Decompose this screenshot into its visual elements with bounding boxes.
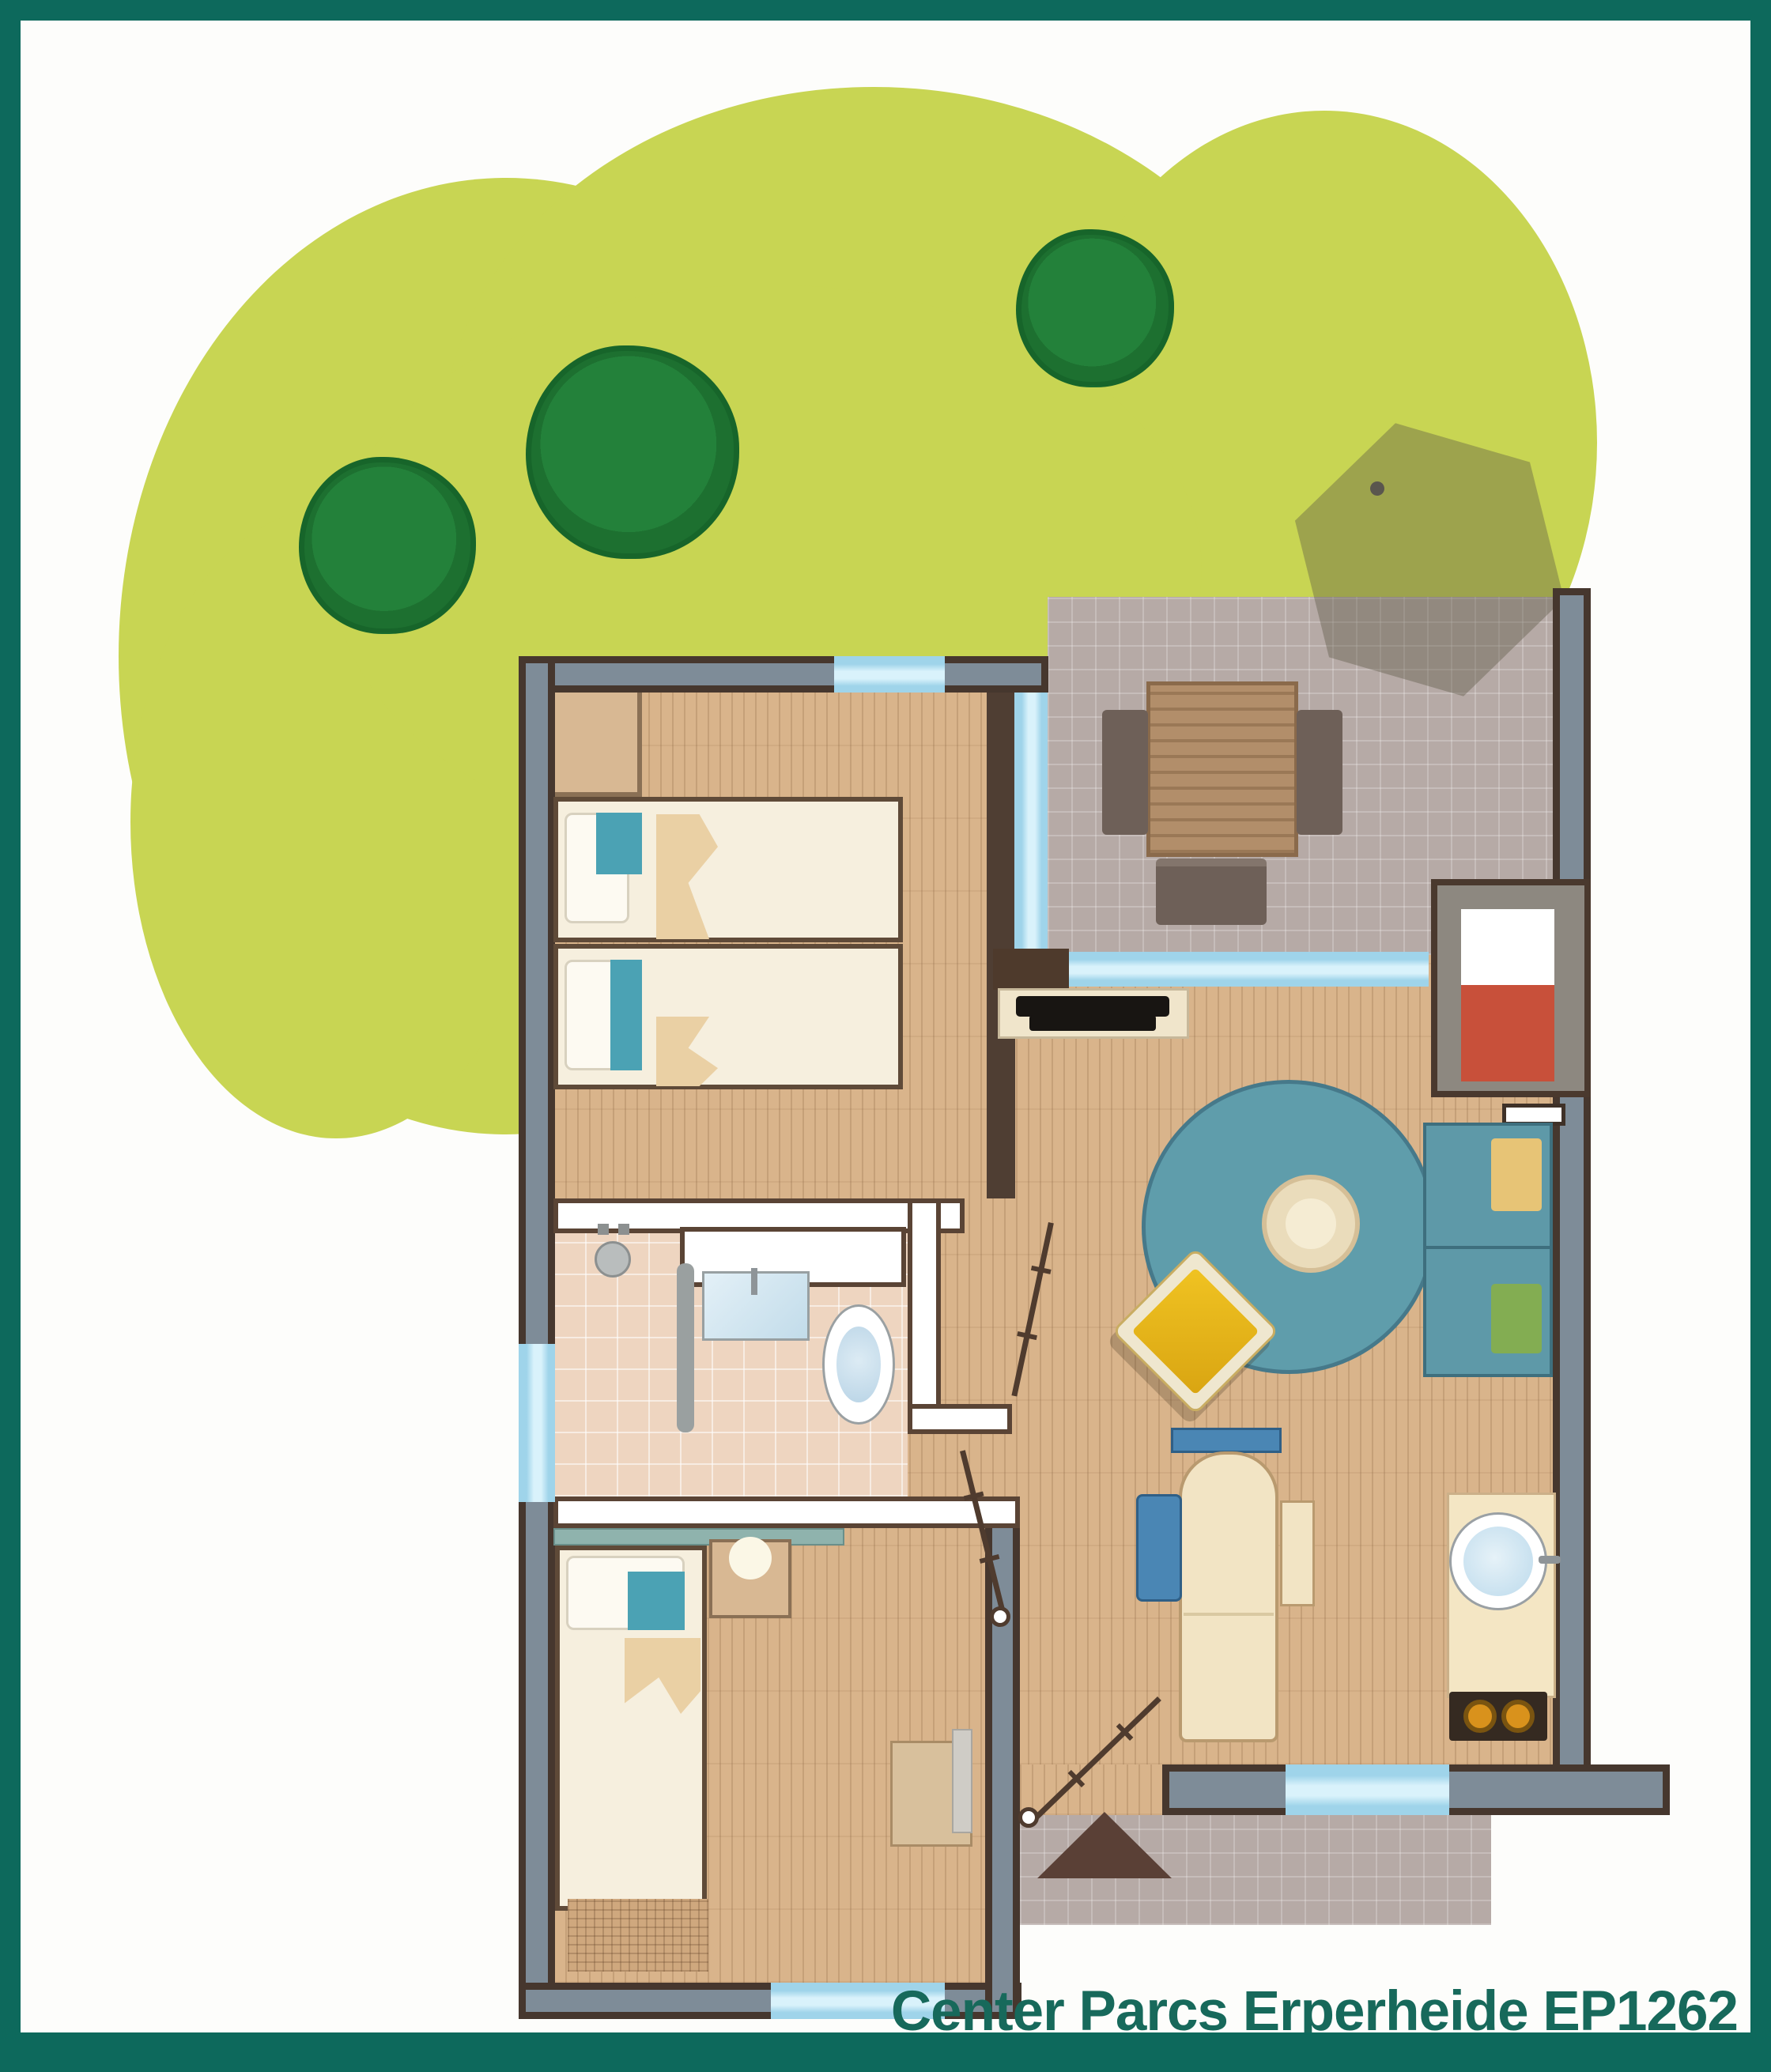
window-icon — [1286, 1764, 1449, 1815]
fireplace-hearth-white — [1461, 909, 1554, 985]
coffee-table-top — [1286, 1198, 1336, 1249]
door-hinge — [1018, 1807, 1039, 1828]
pillow-accent — [628, 1572, 685, 1630]
shower-screen — [677, 1263, 694, 1432]
radiator — [952, 1729, 972, 1833]
patio-glass-side — [1014, 693, 1048, 953]
shower-icon — [595, 1241, 631, 1278]
dining-chair — [1136, 1494, 1182, 1602]
wall-right — [1553, 588, 1591, 1815]
pillow-accent — [610, 960, 642, 1070]
window-icon — [834, 656, 945, 693]
side-table — [1280, 1500, 1315, 1606]
wardrobe-icon — [555, 693, 642, 797]
dining-table-icon — [1179, 1451, 1278, 1742]
toilet-nook-wall — [908, 1404, 1012, 1434]
sofa-cushion-yellow — [1491, 1138, 1542, 1211]
bedroom2-wall-top — [553, 1496, 1020, 1528]
sofa-cushion-green — [1491, 1284, 1542, 1353]
tree-icon — [299, 457, 476, 634]
terrace-chair — [1102, 710, 1148, 835]
window-icon — [519, 1344, 555, 1502]
bathroom-wall-right — [908, 1198, 941, 1434]
bed-rug — [568, 1899, 708, 1972]
bedroom2-shelf — [553, 1528, 844, 1546]
toilet-bowl — [836, 1327, 881, 1402]
kitchen-sink-basin — [1463, 1527, 1533, 1596]
wall-left — [519, 656, 555, 2019]
dining-table-joint — [1184, 1613, 1274, 1616]
floor-plan-canvas: Center Parcs Erperheide EP1262 — [0, 0, 1771, 2072]
patio-glass-front — [1068, 952, 1429, 987]
tree-icon — [1016, 229, 1174, 387]
shower-valves — [618, 1224, 629, 1235]
burner-icon — [1501, 1700, 1535, 1733]
wall-top — [519, 656, 1048, 693]
tv-icon — [1016, 996, 1169, 1017]
terrace-chair — [1297, 710, 1342, 835]
shower-valves — [598, 1224, 609, 1235]
tv-icon — [1029, 1015, 1156, 1031]
basin-tap — [751, 1268, 757, 1295]
picnic-table-icon — [1146, 681, 1298, 857]
tree-icon — [526, 345, 739, 559]
sofa-divider — [1426, 1246, 1550, 1249]
door-hinge — [990, 1606, 1010, 1627]
lamp-icon — [729, 1537, 772, 1579]
pillow-accent — [596, 813, 642, 874]
patio-door-post — [993, 949, 1069, 990]
bench-icon — [1171, 1428, 1282, 1453]
faucet-icon — [1539, 1556, 1561, 1564]
wall-bedroom1-right — [987, 693, 1015, 1198]
burner-icon — [1463, 1700, 1497, 1733]
terrace-chair — [1156, 859, 1267, 925]
plan-caption: Center Parcs Erperheide EP1262 — [891, 1980, 1738, 2044]
fireplace-hearth-red — [1461, 985, 1554, 1081]
